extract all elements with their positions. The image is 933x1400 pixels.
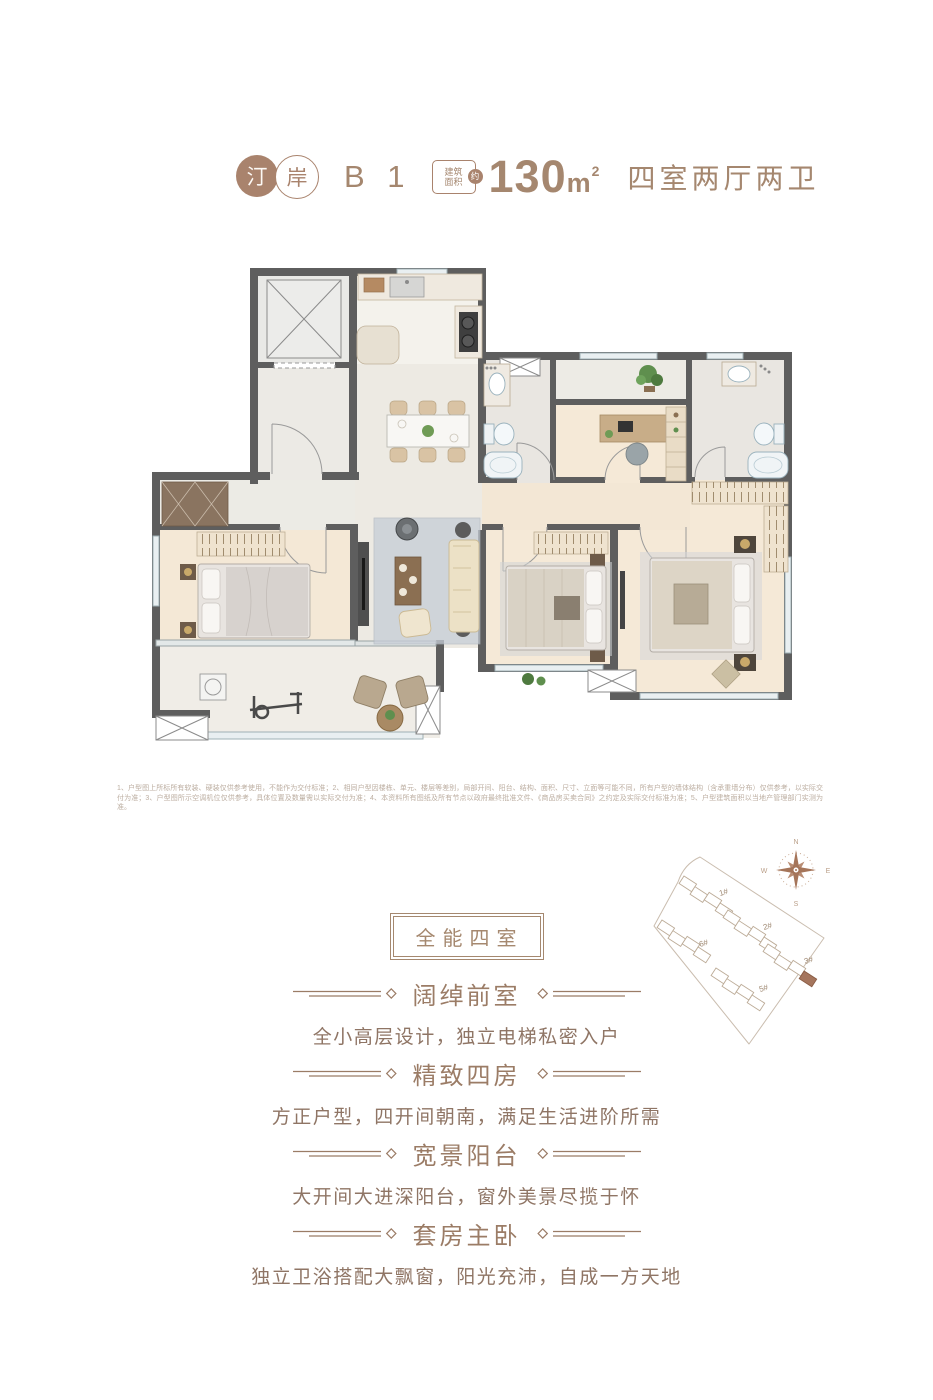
kitchen-counter (357, 326, 399, 364)
area-badge-line2: 面积 (445, 177, 463, 187)
cutting-board (364, 278, 384, 292)
compass-rose: N E S W (761, 839, 831, 908)
compass-s: S (794, 901, 799, 908)
logo-circle-outline: 岸 (275, 155, 319, 199)
area-superscript: 2 (592, 163, 601, 179)
divider-ornament-left (293, 1148, 401, 1160)
area-unit: m (567, 168, 592, 198)
flyer-page: 汀 岸 B 1 建筑 面积 约 130m2 四室两厅两卫 (0, 0, 933, 1400)
balcony-left-bay (156, 716, 208, 740)
bedroom-bay (588, 670, 636, 692)
feature-2: 精致四房 方正户型，四开间朝南，满足生活进阶所需 (0, 1056, 933, 1129)
feature-desc: 独立卫浴搭配大飘窗，阳光充沛，自成一方天地 (0, 1262, 933, 1289)
logo-char-1: 汀 (247, 161, 268, 191)
building-label-6: 6# (698, 938, 710, 949)
feature-1: 阔绰前室 全小高层设计，独立电梯私密入户 (0, 976, 933, 1049)
divider-ornament-left (293, 1228, 401, 1240)
area-value: 130m2 (489, 151, 601, 203)
feature-title: 阔绰前室 (413, 976, 521, 1011)
living-room (358, 518, 480, 644)
building-label-3: 3# (803, 955, 815, 966)
compass-e: E (826, 868, 831, 875)
side-table (455, 522, 471, 538)
divider-ornament-right (533, 1068, 641, 1080)
room-count-label: 四室两厅两卫 (627, 157, 819, 197)
feature-desc: 大开间大进深阳台，窗外美景尽揽于怀 (0, 1182, 933, 1209)
washing-machine (200, 674, 226, 700)
toilet (484, 424, 494, 444)
logo-char-2: 岸 (287, 162, 308, 192)
unit-type-label: B 1 (344, 159, 412, 195)
area-badge-line1: 建筑 (445, 167, 463, 177)
compass-n: N (793, 839, 798, 846)
sofa (449, 540, 479, 632)
feature-desc: 全小高层设计，独立电梯私密入户 (0, 1022, 933, 1049)
floor-plan (150, 266, 792, 768)
desk-chair (626, 443, 648, 465)
area-approx-circle: 约 (468, 169, 483, 184)
divider-ornament-right (533, 1148, 641, 1160)
tv-panel (620, 571, 625, 629)
compass-w: W (761, 868, 768, 875)
nightstand (590, 650, 605, 662)
ledge-plant (522, 673, 534, 685)
nightstand (590, 554, 605, 566)
table-plant (422, 425, 434, 437)
storage-closet (162, 482, 228, 526)
bookshelf (666, 407, 686, 481)
divider-ornament-right (533, 1228, 641, 1240)
bed-runner (674, 584, 708, 624)
building-label-1: 1# (718, 887, 730, 898)
elevator-shaft-x (267, 280, 341, 358)
area-number: 130 (489, 151, 567, 202)
feature-3: 宽景阳台 大开间大进深阳台，窗外美景尽揽于怀 (0, 1136, 933, 1209)
logo-circle-filled: 汀 (236, 155, 278, 197)
dining-area (387, 401, 469, 462)
feature-title: 精致四房 (413, 1056, 521, 1091)
armchair (398, 608, 431, 638)
feature-title: 套房主卧 (413, 1216, 521, 1251)
area-badge: 建筑 面积 约 (432, 160, 476, 194)
feature-4: 套房主卧 独立卫浴搭配大飘窗，阳光充沛，自成一方天地 (0, 1216, 933, 1289)
section-badge-text: 全能四室 (393, 916, 541, 957)
bed-throw (554, 596, 580, 620)
section-badge: 全能四室 (390, 913, 544, 960)
coffee-table (395, 557, 421, 605)
divider-ornament-right (533, 988, 641, 1000)
feature-desc: 方正户型，四开间朝南，满足生活进阶所需 (0, 1102, 933, 1129)
building-label-2: 2# (762, 921, 774, 932)
toilet (774, 424, 784, 444)
divider-ornament-left (293, 1068, 401, 1080)
header: 汀 岸 B 1 建筑 面积 约 130m2 四室两厅两卫 (236, 150, 819, 204)
divider-ornament-left (293, 988, 401, 1000)
disclaimer-text: 1、户型图上所标所有软装、硬装仅供参考使用，不能作为交付标准；2、相同户型因楼栋… (117, 784, 823, 813)
brand-logo: 汀 岸 (236, 155, 319, 199)
feature-title: 宽景阳台 (413, 1136, 521, 1171)
